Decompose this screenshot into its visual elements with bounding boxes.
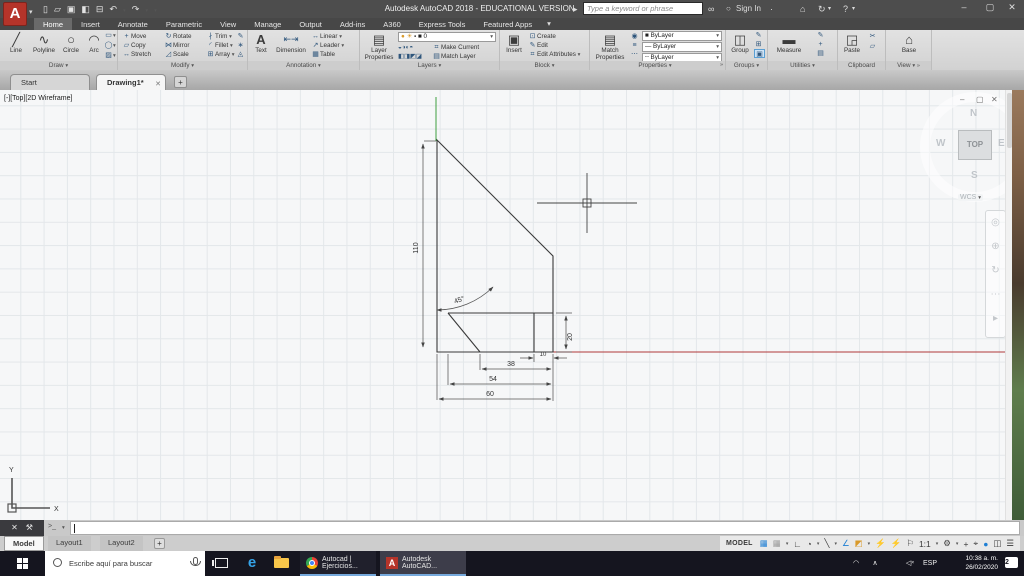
scale-button[interactable]: ◿Scale [164, 50, 189, 59]
workspace-gear-icon[interactable]: ⚙ [943, 538, 951, 549]
panel-layers: ▤Layer Properties ● ☀ ▪ ■ 0 ▾ ◒◑◐◓ ⌗Make… [360, 30, 500, 70]
panel-label-utilities[interactable]: Utilities ▾ [768, 61, 837, 70]
qat-customize-icon[interactable]: ▾ [154, 5, 157, 17]
linetype-list-button[interactable]: ⋯ [630, 50, 639, 59]
drawing-canvas[interactable]: 110 45° 20 10 38 54 60 [0, 90, 1012, 520]
measure-button[interactable]: ▬Measure [772, 31, 806, 55]
minimize-button[interactable]: – [952, 0, 976, 16]
point-icon: + [816, 40, 825, 49]
lineweight-list-button[interactable]: ≡ [630, 41, 639, 50]
polar-caret-icon[interactable]: ▾ [817, 541, 820, 547]
pan-icon[interactable]: ⊕ [986, 235, 1005, 259]
ribbon-tab-bar: Home Insert Annotate Parametric View Man… [0, 18, 1024, 30]
color-wheel-icon: ◉ [630, 32, 639, 41]
taskbar-search-box[interactable]: Escribe aquí para buscar [45, 551, 205, 576]
tab-view[interactable]: View [211, 18, 245, 30]
table-button[interactable]: ▦Table [311, 50, 335, 59]
panel-label-layers[interactable]: Layers ▾ [360, 61, 499, 70]
tab-home[interactable]: Home [34, 18, 72, 30]
paste-label: Paste [840, 48, 864, 55]
command-tools-icon[interactable]: ⚒ [26, 523, 33, 532]
layer-tools-row1[interactable]: ◒◑◐◓ [398, 43, 413, 52]
panel-label-properties[interactable]: Properties ▾» [590, 61, 725, 70]
paste-button[interactable]: ◲Paste [840, 31, 864, 55]
block-panel-caret-icon: ▾ [552, 63, 555, 69]
circle-label: Circle [59, 48, 83, 55]
sign-in-button[interactable]: Sign In [736, 3, 761, 15]
scale-icon: ◿ [164, 50, 173, 59]
date-value: 26/02/2020 [946, 563, 998, 572]
snap-toggle-icon[interactable]: ▦ [773, 538, 781, 549]
lineweight-icon: — [645, 43, 651, 50]
line-label: Line [3, 48, 29, 55]
title-bar: ▯▱▣◧⊟↶▾↷▾▾ Autodesk AutoCAD 2018 - EDUCA… [0, 0, 1024, 18]
table-icon: ▦ [311, 50, 320, 59]
volume-muted-icon[interactable]: ◁× [902, 551, 918, 576]
redo-icon[interactable]: ↷ [132, 3, 140, 15]
hatch-caret-icon: ▾ [113, 53, 116, 59]
time-value: 10:38 a. m. [946, 554, 998, 563]
mirror-button[interactable]: ⋈Mirror [164, 41, 189, 50]
units-icon[interactable]: ⌖ [973, 538, 978, 549]
command-input[interactable] [70, 521, 1020, 535]
fillet-caret-icon: ▾ [230, 43, 233, 49]
autocad-app-menu-logo[interactable]: A [3, 2, 27, 26]
hatch-icon: ▨ [104, 51, 113, 60]
linear-button[interactable]: ↔Linear ▾ [311, 32, 342, 41]
panel-label-groups[interactable]: Groups ▾ [726, 61, 767, 70]
start-button[interactable] [0, 551, 45, 576]
tab-a360[interactable]: A360 [374, 18, 410, 30]
insert-label: Insert [502, 48, 526, 55]
circle-icon: ○ [59, 31, 83, 48]
language-indicator[interactable]: ESP [920, 551, 940, 576]
annotation-panel-caret-icon: ▾ [318, 63, 321, 69]
utilities-panel-caret-icon: ▾ [812, 63, 815, 69]
tab-addins[interactable]: Add-ins [331, 18, 374, 30]
copy-icon: ▱ [122, 41, 131, 50]
ucs-x-label: X [54, 506, 59, 513]
dim-angle: 45° [453, 294, 466, 305]
modify-panel-caret-icon: ▾ [191, 63, 194, 69]
help-search-input[interactable]: Type a keyword or phrase [583, 2, 703, 15]
panel-label-block[interactable]: Block ▾ [500, 61, 589, 70]
viewcube-south[interactable]: S [971, 170, 978, 181]
insert-icon: ▣ [502, 31, 526, 48]
polar-toggle-icon[interactable]: ◔ [807, 539, 812, 549]
navigation-bar[interactable]: ◎ ⊕ ↻ ⋯ ▸ [985, 210, 1006, 338]
ellipse-icon: ◯ [104, 41, 113, 50]
polyline-icon: ∿ [30, 31, 58, 48]
draw-panel-caret-icon: ▾ [65, 63, 68, 69]
task-view-button[interactable] [208, 551, 236, 576]
status-toggles: MODEL ▦ ▦▾ ∟ ◔▾ ╲▾ ∠ ◩▾ ⚡ ⚡ ⚐ 1:1▾ ⚙▾ + … [720, 536, 1020, 551]
app-menu-caret-icon[interactable]: ▾ [29, 8, 33, 16]
model-space-label[interactable]: MODEL [726, 540, 753, 547]
ucs-icon: Y X [8, 467, 59, 513]
crosshair-cursor [537, 173, 637, 233]
viewcube-wcs-menu[interactable]: WCS ▾ [958, 194, 983, 201]
lineweight-caret-icon: ▾ [716, 43, 719, 51]
view-overflow-icon[interactable]: » [917, 63, 920, 69]
annotation-visibility-icon[interactable]: ⚡ [875, 538, 886, 549]
ungroup-icon: ✎ [754, 31, 763, 40]
current-layer-name: 0 [424, 33, 428, 40]
vp-restore-icon[interactable]: ▢ [976, 95, 984, 104]
person-icon: ○ [726, 3, 731, 15]
panel-label-modify[interactable]: Modify ▾ [118, 61, 247, 70]
explode-icon: ∗ [236, 41, 245, 50]
layout-tab-layout2[interactable]: Layout2 [100, 536, 143, 551]
layer-properties-label: Layer Properties [362, 48, 396, 61]
quick-access-toolbar: ▯▱▣◧⊟↶▾↷▾▾ [40, 3, 160, 15]
panel-label-view[interactable]: View ▾ » [886, 61, 931, 70]
base-label: Base [896, 48, 922, 55]
command-history-caret-icon[interactable]: ▾ [62, 525, 65, 531]
circle-button[interactable]: ○Circle [59, 31, 83, 55]
annotation-monitor-icon[interactable]: + [963, 539, 968, 549]
leader-button[interactable]: ↗Leader ▾ [311, 41, 344, 50]
start-icon [17, 558, 22, 563]
command-prompt-icon: >_ [48, 523, 56, 530]
fillet-button[interactable]: ◜Fillet ▾ [206, 41, 233, 50]
edit-block-button[interactable]: ✎Edit [528, 41, 548, 50]
arc-icon: ◠ [84, 31, 104, 48]
match-properties-label: Match Properties [592, 48, 628, 61]
line-button[interactable]: ╱Line [3, 31, 29, 55]
layout-tab-layout1[interactable]: Layout1 [48, 536, 91, 551]
chrome-window-title: Autocad | Ejercicios... [322, 556, 370, 570]
leader-icon: ↗ [311, 41, 320, 50]
otrack-toggle-icon[interactable]: ╲ [824, 538, 829, 549]
tab-express-tools[interactable]: Express Tools [410, 18, 475, 30]
help-caret-icon[interactable]: ▾ [852, 3, 855, 15]
panel-block: ▣Insert ⊡Create ✎Edit ⌗Edit Attributes ▾… [500, 30, 590, 70]
panel-utilities: ▬Measure ✎ + ▤ Utilities ▾ [768, 30, 838, 70]
file-explorer-icon[interactable] [268, 551, 296, 576]
tab-manage[interactable]: Manage [245, 18, 290, 30]
linetype-list-icon: ⋯ [630, 50, 639, 59]
lineweight-list-icon: ≡ [630, 41, 639, 50]
layer-tools-row2[interactable]: ◧◨◩◪ [398, 52, 422, 61]
panel-draw: ╱Line ∿Polyline ○Circle ◠Arc ▭▾ ◯▾ ▨▾ Dr… [0, 30, 118, 70]
vp-minimize-icon[interactable]: – [960, 95, 964, 104]
panel-label-clipboard[interactable]: Clipboard [838, 61, 885, 70]
stretch-icon: ↔ [122, 50, 131, 59]
exchange-caret-icon[interactable]: ▾ [828, 3, 831, 15]
showmotion-icon[interactable]: ▸ [986, 307, 1005, 331]
dim-height: 110 [413, 242, 420, 253]
exchange-icon[interactable]: ↻ [818, 3, 826, 15]
hatch-button[interactable]: ▨▾ [104, 51, 116, 60]
trim-icon: ∤ [206, 32, 215, 41]
rotate-icon: ↻ [164, 32, 173, 41]
text-label: Text [251, 48, 271, 55]
customization-menu-icon[interactable]: ☰ [1006, 538, 1014, 549]
file-tab-drawing1[interactable]: Drawing1*✕ [96, 74, 166, 90]
panel-clipboard: ◲Paste ✂ ▱ Clipboard [838, 30, 886, 70]
tab-parametric[interactable]: Parametric [157, 18, 211, 30]
copy-clip-icon: ▱ [868, 42, 877, 51]
autocad-icon: A [386, 557, 398, 569]
rectangle-caret-icon: ▾ [113, 33, 116, 39]
isodraft-toggle-icon[interactable]: ∠ [842, 538, 850, 549]
grid-toggle-icon[interactable]: ▦ [760, 538, 768, 549]
taskbar-search-placeholder: Escribe aquí para buscar [69, 551, 152, 576]
make-current-icon: ⌗ [432, 43, 441, 52]
new-drawing-tab-button[interactable]: + [174, 76, 187, 88]
wcs-caret-icon: ▾ [978, 195, 981, 201]
action-center-icon[interactable]: 2 [1005, 557, 1018, 568]
autocad-taskbar-button[interactable]: A Autodesk AutoCAD... [380, 551, 466, 576]
match-layer-button[interactable]: ▤Match Layer [432, 52, 476, 61]
dimension-label: Dimension [273, 48, 309, 55]
offset-icon: ◬ [236, 50, 245, 59]
drawing-geometry: 110 45° 20 10 38 54 60 [0, 90, 1012, 520]
text-button[interactable]: AText [251, 31, 271, 55]
undo-caret-icon[interactable]: ▾ [123, 5, 126, 17]
view-panel-caret-icon: ▾ [912, 63, 915, 69]
dynamic-input-icon[interactable]: ◩ [855, 538, 863, 549]
panel-groups: ◫Group ✎ ⊞ ▣ Groups ▾ [726, 30, 768, 70]
desktop-wallpaper-strip [1012, 90, 1024, 520]
edit-block-icon: ✎ [528, 41, 537, 50]
insert-button[interactable]: ▣Insert [502, 31, 526, 55]
group-button[interactable]: ◫Group [727, 31, 753, 55]
edit-attributes-icon: ⌗ [528, 50, 537, 59]
layer-color-swatch: ■ [418, 33, 422, 40]
polyline-button[interactable]: ∿Polyline [30, 31, 58, 55]
linetype-icon: ┄ [645, 54, 649, 61]
make-current-button[interactable]: ⌗Make Current [432, 43, 479, 52]
layer-freeze-icon: ☀ [407, 33, 413, 40]
close-button[interactable]: ✕ [1000, 0, 1024, 16]
annotation-scale-flag-icon[interactable]: ⚐ [906, 538, 914, 549]
group-selection-toggle[interactable]: ▣ [754, 49, 765, 58]
binoculars-icon[interactable]: ∞ [708, 3, 714, 15]
tab-output[interactable]: Output [290, 18, 331, 30]
workspace-caret-icon[interactable]: ▾ [956, 541, 959, 547]
file-tab-bar: Start Drawing1*✕ + [0, 70, 1024, 90]
edge-icon[interactable]: e [238, 551, 266, 576]
navwheel-icon[interactable]: ◎ [986, 211, 1005, 235]
network-icon[interactable] [886, 551, 900, 576]
text-icon: A [251, 31, 271, 48]
calculator-button[interactable]: ▤ [816, 49, 825, 58]
rectangle-button[interactable]: ▭▾ [104, 31, 116, 40]
open-icon[interactable]: ▱ [54, 3, 61, 15]
array-caret-icon: ▾ [232, 52, 235, 58]
part-inner-edges[interactable] [448, 313, 553, 352]
point-button[interactable]: + [816, 40, 825, 49]
zoom-icon[interactable]: ⋯ [986, 283, 1005, 307]
autoscale-icon[interactable]: ⚡ [891, 538, 902, 549]
status-bar: Model Layout1 Layout2 + MODEL ▦ ▦▾ ∟ ◔▾ … [0, 536, 1024, 551]
otrack-caret-icon[interactable]: ▾ [834, 541, 837, 547]
new-layout-button[interactable]: + [154, 538, 165, 549]
lineweight-dropdown[interactable]: — ByLayer▾ [642, 42, 722, 52]
polyline-label: Polyline [30, 48, 58, 55]
ribbon-options-caret-icon[interactable]: ▾ [541, 18, 557, 29]
tab-insert[interactable]: Insert [72, 18, 109, 30]
mirror-icon: ⋈ [164, 41, 173, 50]
stretch-button[interactable]: ↔Stretch [122, 50, 151, 59]
file-tab-start[interactable]: Start [10, 74, 90, 90]
panel-annotation: AText ⇤⇥Dimension ↔Linear ▾ ↗Leader ▾ ▦T… [248, 30, 360, 70]
dim-w54: 54 [489, 376, 497, 383]
cut-button[interactable]: ✂ [868, 32, 877, 41]
copy-button[interactable]: ▱Copy [122, 41, 146, 50]
viewcube-north[interactable]: N [970, 108, 977, 119]
undo-icon[interactable]: ↶ [109, 3, 117, 15]
array-icon: ⊞ [206, 50, 215, 59]
ungroup-button[interactable]: ✎ [754, 31, 763, 40]
restore-button[interactable]: ▢ [978, 0, 1002, 16]
layer-lock-icon: ▪ [414, 33, 416, 40]
erase-icon: ✎ [236, 32, 245, 41]
match-properties-icon: ▤ [592, 31, 628, 48]
panel-modify: +Move ↻Rotate ∤Trim ▾ ▱Copy ⋈Mirror ◜Fil… [118, 30, 248, 70]
help-icon[interactable]: ? [843, 3, 848, 15]
copy-clip-button[interactable]: ▱ [868, 42, 877, 51]
dim-w10: 10 [540, 352, 547, 358]
panel-label-draw[interactable]: Draw ▾ [0, 61, 117, 70]
scale-caret-icon[interactable]: ▾ [936, 541, 939, 547]
saveas-icon[interactable]: ◧ [81, 3, 90, 15]
edit-attributes-button[interactable]: ⌗Edit Attributes ▾ [528, 50, 580, 59]
layer-properties-icon: ▤ [362, 31, 396, 48]
group-edit-button[interactable]: ⊞ [754, 40, 763, 49]
match-layer-icon: ▤ [432, 52, 441, 61]
layer-properties-button[interactable]: ▤Layer Properties [362, 31, 396, 61]
layers-panel-caret-icon: ▾ [438, 63, 441, 69]
dyn-caret-icon[interactable]: ▾ [868, 541, 871, 547]
hidden-icons-chevron[interactable]: ∧ [868, 551, 882, 576]
offset-button[interactable]: ◬ [236, 50, 245, 59]
rectangle-icon: ▭ [104, 31, 113, 40]
ortho-toggle-icon[interactable]: ∟ [793, 539, 801, 549]
leader-caret-icon: ▾ [341, 43, 344, 49]
save-icon[interactable]: ▣ [67, 3, 76, 15]
panel-properties: ▤Match Properties ◉ ≡ ⋯ ■ ByLayer▾ — ByL… [590, 30, 726, 70]
windows-taskbar: Escribe aquí para buscar e Autocad | Eje… [0, 551, 1024, 576]
properties-overflow-icon[interactable]: » [720, 61, 723, 70]
command-close-icon[interactable]: ✕ [11, 523, 18, 532]
dimension-icon: ⇤⇥ [273, 31, 309, 48]
move-button[interactable]: +Move [122, 32, 146, 41]
new-icon[interactable]: ▯ [43, 3, 48, 15]
layer-dropdown-caret-icon: ▾ [490, 33, 493, 41]
ucs-y-label: Y [9, 467, 14, 474]
rotate-button[interactable]: ↻Rotate [164, 32, 192, 41]
properties-panel-caret-icon: ▾ [669, 63, 672, 69]
command-line-row: ✕⚒ >_ ▾ [0, 520, 1024, 536]
signin-caret-icon[interactable]: · [770, 3, 773, 15]
screen: ▯▱▣◧⊟↶▾↷▾▾ Autodesk AutoCAD 2018 - EDUCA… [0, 0, 1024, 576]
graphics-performance-icon[interactable]: ● [983, 539, 988, 549]
measure-label: Measure [772, 48, 806, 55]
chrome-icon [306, 557, 318, 569]
line-icon: ╱ [3, 31, 29, 48]
move-icon: + [122, 32, 131, 41]
dim-w38: 38 [507, 361, 515, 368]
plot-icon[interactable]: ⊟ [96, 3, 104, 15]
viewcube-east[interactable]: E [998, 138, 1005, 149]
group-edit-icon: ⊞ [754, 40, 763, 49]
group-icon: ◫ [727, 31, 753, 48]
tab-annotate[interactable]: Annotate [109, 18, 157, 30]
cut-icon: ✂ [868, 32, 877, 41]
viewcube-top-face[interactable]: TOP [958, 130, 992, 160]
search-flyout-icon[interactable]: ▸ [573, 3, 578, 15]
autocad-window-title: Autodesk AutoCAD... [402, 556, 460, 570]
match-properties-button[interactable]: ▤Match Properties [592, 31, 628, 61]
store-icon[interactable]: ⌂ [800, 3, 805, 15]
color-caret-icon: ▾ [716, 32, 719, 40]
tab-featured-apps[interactable]: Featured Apps [474, 18, 541, 30]
snap-caret-icon[interactable]: ▾ [786, 541, 789, 547]
ribbon: ╱Line ∿Polyline ○Circle ◠Arc ▭▾ ◯▾ ▨▾ Dr… [0, 30, 1024, 70]
explode-button[interactable]: ∗ [236, 41, 245, 50]
panel-view: ⌂Base View ▾ » [886, 30, 932, 70]
viewport-controls[interactable]: [-][Top][2D Wireframe] [4, 95, 72, 102]
quick-select-button[interactable]: ✎ [816, 31, 825, 40]
chrome-taskbar-button[interactable]: Autocad | Ejercicios... [300, 551, 376, 576]
clock[interactable]: 10:38 a. m. 26/02/2020 [946, 554, 998, 576]
viewcube-west[interactable]: W [936, 138, 945, 149]
paste-icon: ◲ [840, 31, 864, 48]
trim-caret-icon: ▾ [229, 34, 232, 40]
dim-step: 20 [567, 333, 574, 341]
object-color-swatch: ■ [645, 32, 649, 39]
calculator-icon: ▤ [816, 49, 825, 58]
arc-button[interactable]: ◠Arc [84, 31, 104, 55]
groups-panel-caret-icon: ▾ [756, 63, 759, 69]
vp-close-icon[interactable]: ✕ [991, 95, 998, 104]
erase-button[interactable]: ✎ [236, 32, 245, 41]
dimension-button[interactable]: ⇤⇥Dimension [273, 31, 309, 55]
trim-button[interactable]: ∤Trim ▾ [206, 32, 232, 41]
edit-attributes-caret-icon: ▾ [578, 52, 581, 58]
people-icon[interactable]: ◠ [848, 551, 864, 576]
orbit-icon[interactable]: ↻ [986, 259, 1005, 283]
clean-screen-icon[interactable]: ◫ [993, 538, 1001, 549]
group-label: Group [727, 48, 753, 55]
cortana-icon [53, 558, 62, 567]
layout-tab-model[interactable]: Model [4, 536, 44, 551]
canvas-scrollbar[interactable] [1005, 90, 1012, 520]
array-button[interactable]: ⊞Array ▾ [206, 50, 235, 59]
create-block-button[interactable]: ⊡Create [528, 32, 556, 41]
layer-on-icon: ● [401, 33, 405, 40]
annotation-scale-value[interactable]: 1:1 [919, 539, 931, 549]
redo-caret-icon[interactable]: ▾ [145, 5, 148, 17]
base-icon: ⌂ [896, 31, 922, 48]
arc-label: Arc [84, 48, 104, 55]
linear-icon: ↔ [311, 32, 320, 41]
ellipse-caret-icon: ▾ [113, 43, 116, 49]
group-selection-icon: ▣ [755, 50, 764, 59]
layer-dropdown[interactable]: ● ☀ ▪ ■ 0 ▾ [398, 32, 496, 42]
app-title: Autodesk AutoCAD 2018 - EDUCATIONAL VERS… [385, 4, 575, 13]
panel-label-annotation[interactable]: Annotation ▾ [248, 61, 359, 70]
color-wheel-button[interactable]: ◉ [630, 32, 639, 41]
object-color-dropdown[interactable]: ■ ByLayer▾ [642, 31, 722, 41]
base-button[interactable]: ⌂Base [896, 31, 922, 55]
command-dock: ✕⚒ [0, 520, 44, 536]
ellipse-button[interactable]: ◯▾ [104, 41, 116, 50]
create-block-icon: ⊡ [528, 32, 537, 41]
